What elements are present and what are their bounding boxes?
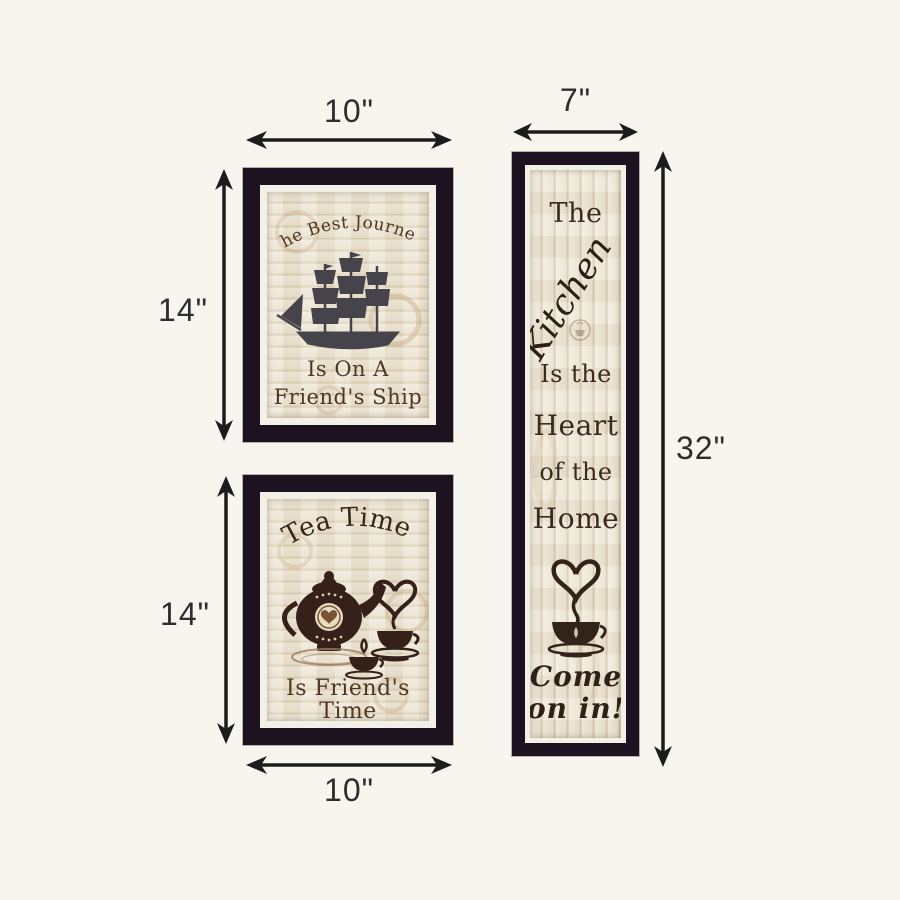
journey-arc-text: The Best Journey — [267, 192, 419, 252]
framed-print-kitchen: The Kitchen Is the Heart of the Home — [512, 152, 639, 756]
teacup-icon — [346, 639, 383, 679]
tea-height-label: 14" — [140, 598, 210, 630]
kitchen-height-arrow — [653, 150, 673, 768]
framed-print-tea-time: Tea Time — [243, 475, 453, 745]
tea-line2: Is Friend's — [286, 676, 410, 701]
svg-text:Tea Time: Tea Time — [278, 503, 416, 552]
kitchen-line8: on in! — [530, 692, 621, 725]
kitchen-line6: Home — [533, 502, 619, 535]
kitchen-width-arrow — [512, 122, 639, 142]
tea-width-label: 10" — [245, 774, 453, 806]
tea-arc-text: Tea Time — [278, 503, 416, 552]
kitchen-line4: Heart — [534, 409, 619, 442]
framed-print-journey: The Best Journey — [243, 168, 453, 442]
tea-height-arrow — [216, 475, 236, 745]
journey-height-arrow — [214, 168, 234, 442]
kitchen-word1: The — [550, 198, 603, 229]
coffee-cup-heart-icon — [549, 561, 605, 657]
journey-line3: Friend's Ship — [274, 385, 423, 409]
journey-print: The Best Journey — [267, 192, 429, 418]
tea-print: Tea Time — [267, 499, 429, 721]
kitchen-line5: of the — [539, 458, 612, 486]
journey-width-arrow — [245, 130, 453, 150]
product-dimension-diagram: 10" 14" 14" 10" 7" 32" — [0, 0, 900, 900]
teapot-icon — [284, 571, 386, 651]
journey-line2: Is On A — [307, 357, 389, 381]
kitchen-width-label: 7" — [512, 84, 639, 116]
journey-width-label: 10" — [245, 95, 453, 127]
kitchen-line3: Is the — [540, 360, 612, 388]
ship-icon — [277, 252, 399, 349]
kitchen-print: The Kitchen Is the Heart of the Home — [530, 170, 621, 738]
svg-text:The Best Journey: The Best Journey — [267, 192, 419, 252]
kitchen-line7: Come — [530, 660, 621, 693]
journey-height-label: 14" — [138, 294, 208, 326]
tea-line3: Time — [319, 699, 377, 721]
kitchen-height-label: 32" — [676, 432, 726, 464]
kitchen-word2: Kitchen — [530, 230, 620, 368]
stamp-icon — [570, 320, 590, 340]
